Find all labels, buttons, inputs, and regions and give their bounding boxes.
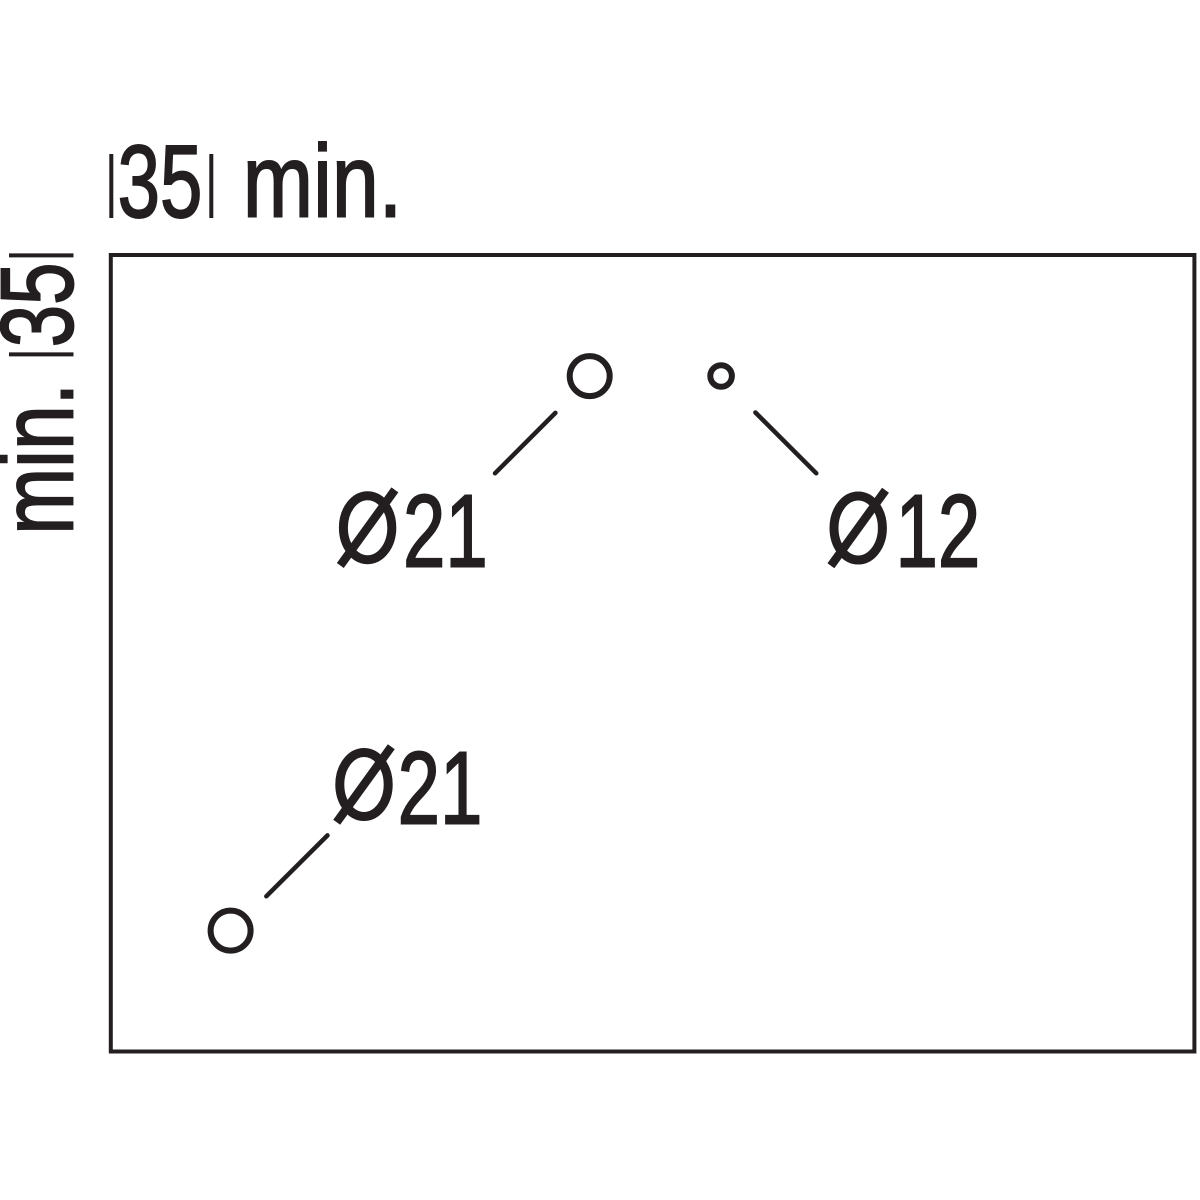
svg-text:min.: min. (243, 124, 403, 239)
svg-text:12: 12 (896, 474, 981, 589)
svg-text:21: 21 (403, 474, 488, 589)
svg-text:min.: min. (0, 383, 95, 535)
svg-text:35: 35 (0, 263, 95, 348)
svg-text:21: 21 (398, 731, 483, 846)
svg-text:35: 35 (118, 125, 203, 240)
